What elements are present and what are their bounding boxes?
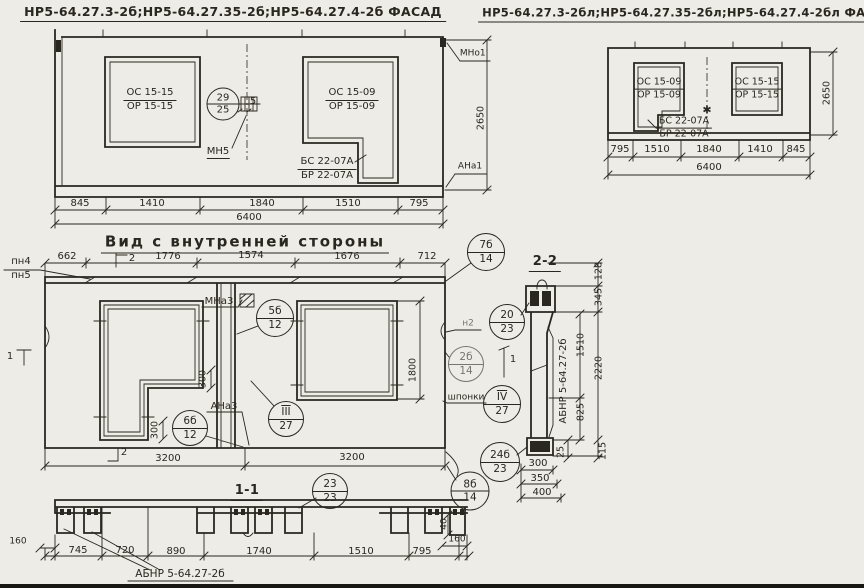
dim-label: 795 [409,199,428,209]
dim-label: 712 [417,252,436,262]
window-mark-stack: ОС 15-09 ОР 15-09 [325,87,378,113]
edge-mark: пн5 [11,271,30,281]
window-mark: ОР 15-09 [325,101,378,114]
dim-label: 2220 [594,356,604,380]
section-cut-mark: 2 [129,254,135,264]
section-1-1-title: 1-1 [231,483,263,501]
detail-circle: 24б23 [480,442,520,482]
detail-circle: IV27 [483,385,521,423]
detail-circle: 2323 [312,473,348,509]
section-cut-mark: 1 [7,352,13,362]
dim-label: 345 [594,288,604,306]
dim-label: 825 [576,403,586,421]
dim-label: 400 [532,488,551,498]
star-mark: ✱ [702,105,711,116]
dim-label: 845 [70,199,89,209]
dim-label: 1840 [696,145,721,155]
dim-label: 662 [57,252,76,262]
blueprint-canvas: НР5-64.27.3-2б;НР5-64.27.35-2б;НР5-64.27… [0,0,864,588]
window-mark: ОС 15-09 [325,87,378,101]
beam-mark-stack: БС 22-07А БР 22-07А [298,156,357,182]
dim-label: 25 [556,446,566,458]
window-mark: ОР 15-15 [123,101,176,114]
keys-label: шпонки [448,394,485,403]
detail-circle: 5б12 [256,299,294,337]
dim-label: 720 [115,546,134,556]
dim-label: 795 [412,547,431,557]
edge-mark: пн4 [11,257,30,267]
detail-circle: 2925 [207,88,240,121]
section-cut-mark: 1 [510,355,516,365]
dim-label: 890 [166,547,185,557]
dim-label: 1740 [246,547,271,557]
dim-label: 1840 [249,199,274,209]
section-cut-mark: 2 [121,448,127,458]
part-number-label: АБНР 5-64.27-2б [559,338,569,423]
dim-label: 128 [594,262,604,280]
anchor-number: 5 [250,97,256,107]
beam-mark: БР 22-07А [298,170,357,183]
dim-total: 6400 [236,213,261,223]
dim-label: 3200 [155,454,180,464]
detail-circle: 6б12 [172,410,208,446]
dim-label: 350 [530,474,549,484]
dim-window-height: 1800 [408,358,418,382]
dim-label: 1410 [747,145,772,155]
edge-detail-label: н2 [462,320,474,329]
detail-circle: 8б14 [451,472,490,511]
detail-circle: III27 [268,401,304,437]
dim-label: 3200 [339,453,364,463]
dim-label: 1410 [139,199,164,209]
dim-label: 40 [441,518,450,529]
dim-step: 300 [198,370,208,388]
dim-label: 1776 [155,252,180,262]
dim-step: 300 [150,421,160,439]
corner-mark-label: МНо1' [460,50,488,59]
beam-mark: БС 22-07А [298,156,357,170]
window-mark-stack: ОС 15-15 ОР 15-15 [732,77,783,102]
dim-label: 745 [68,546,87,556]
corner-mark-label: АНа3 [211,402,238,412]
anchor-label: МН5 [207,147,230,159]
photo-edge [0,584,864,588]
section-2-2-title: 2-2 [529,254,561,272]
detail-circle: 7б14 [467,233,505,271]
dim-label: 795 [610,145,629,155]
detail-circle: 2б14 [448,346,484,382]
window-mark: ОС 15-15 [123,87,176,101]
dim-label: 160 [448,536,465,545]
window-mark-stack: ОС 15-09 ОР 15-09 [634,77,685,102]
dim-label: 1510 [348,547,373,557]
detail-circle: 2023 [489,304,525,340]
dim-label: 845 [786,145,805,155]
dim-label: 300 [528,459,547,469]
dim-height: 2650 [822,81,832,105]
dim-label: 1510 [335,199,360,209]
corner-mark-label: АНа1 [458,163,482,172]
dim-label: 160 [9,538,26,547]
dim-label: 1510 [576,333,586,357]
dim-label: 1574 [238,251,263,261]
facade-left-title: НР5-64.27.3-2б;НР5-64.27.35-2б;НР5-64.27… [20,4,446,22]
part-number-label: АБНР 5-64.27-2б [135,569,224,580]
anchor-label: МНа3 [205,297,234,307]
dim-label: 115 [598,442,608,460]
dim-total: 6400 [696,163,721,173]
facade-right-title: НР5-64.27.3-2бл;НР5-64.27.35-2бл;НР5-64.… [478,6,864,23]
dim-label: 1510 [644,145,669,155]
window-mark-stack: ОС 15-15 ОР 15-15 [123,87,176,113]
beam-mark-stack: БС 22-07А БР 22-07А [656,116,712,141]
dim-label: 1676 [334,252,359,262]
dim-height: 2650 [476,106,486,130]
